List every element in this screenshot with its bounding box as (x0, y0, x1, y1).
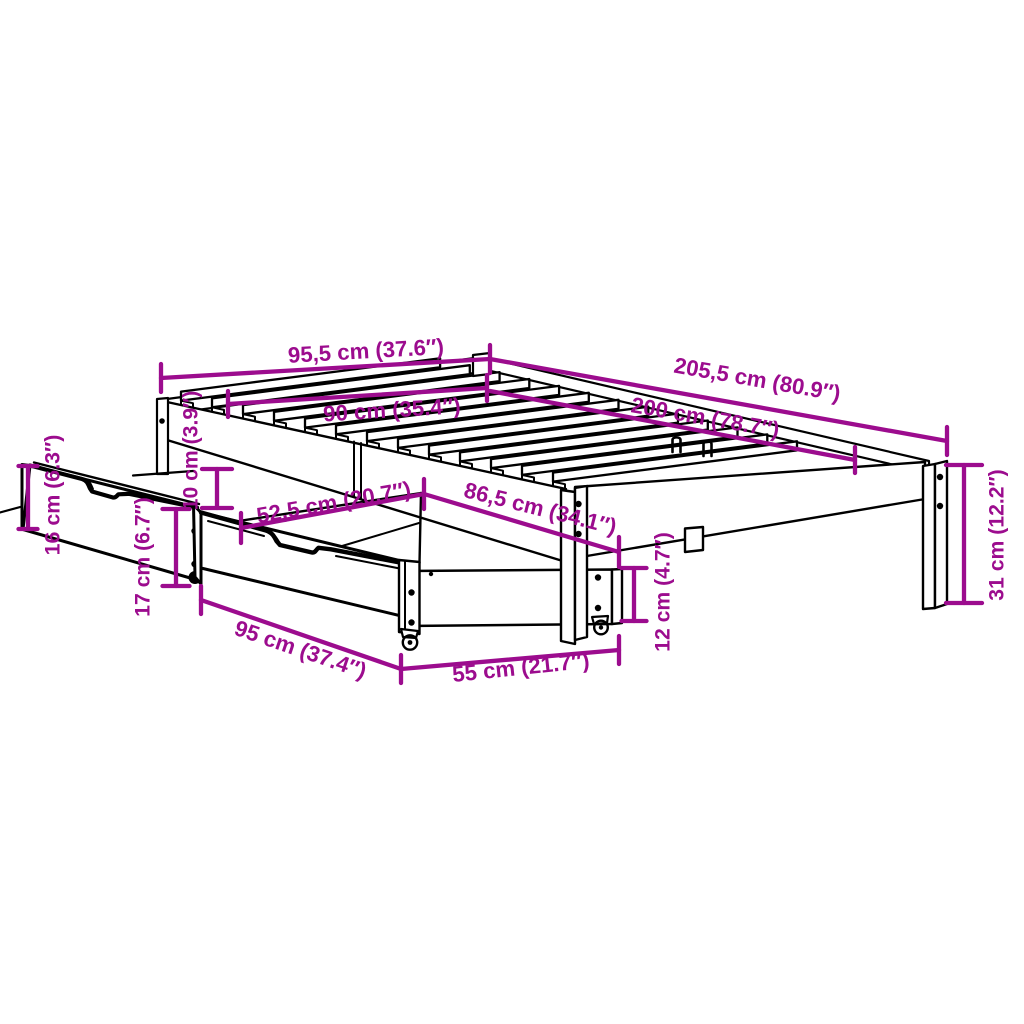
svg-text:17 cm (6.7″): 17 cm (6.7″) (132, 497, 155, 617)
svg-text:31 cm (12.2″): 31 cm (12.2″) (986, 469, 1009, 600)
svg-text:16 cm (6.3″): 16 cm (6.3″) (41, 435, 65, 556)
svg-text:10 cm (3.9″): 10 cm (3.9″) (180, 391, 203, 511)
svg-text:12 cm (4.7″): 12 cm (4.7″) (652, 532, 675, 652)
